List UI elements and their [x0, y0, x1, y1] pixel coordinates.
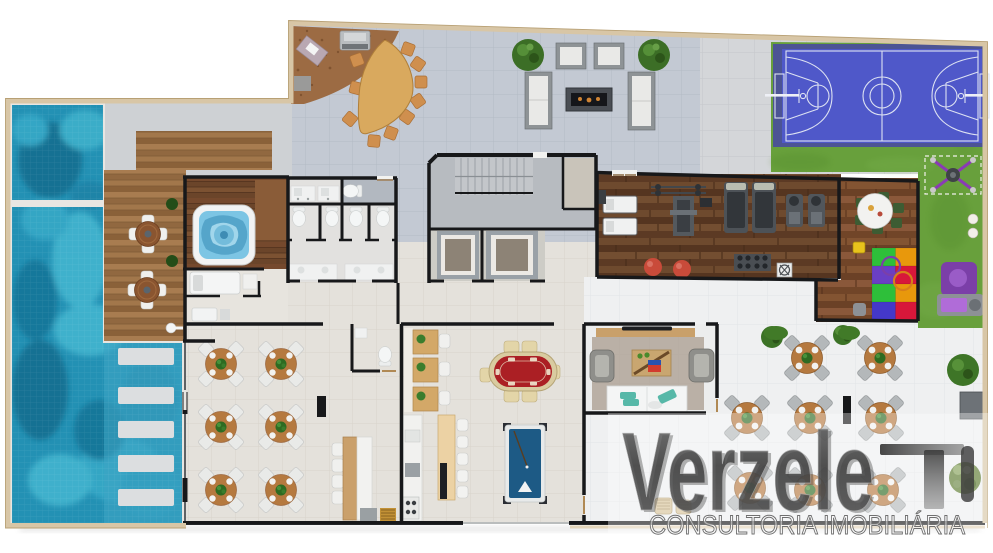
svg-text:CONSULTORIA IMOBILIÁRIA: CONSULTORIA IMOBILIÁRIA — [649, 510, 965, 540]
